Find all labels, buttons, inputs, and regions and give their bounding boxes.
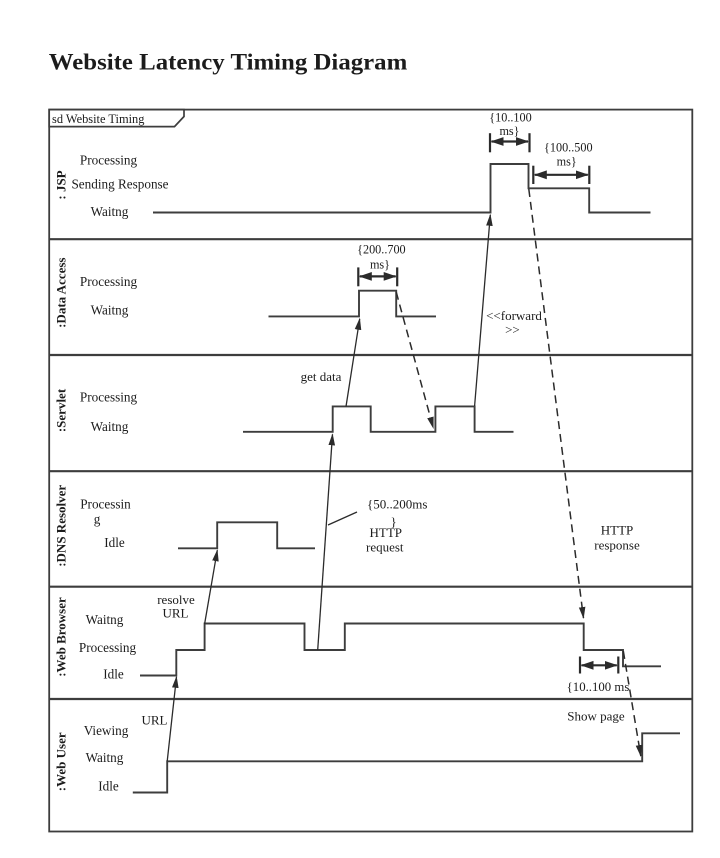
svg-text:Show page: Show page <box>567 708 625 723</box>
svg-text:ms}: ms} <box>499 124 519 138</box>
svg-text:request: request <box>366 540 404 555</box>
svg-text:Waitng: Waitng <box>91 419 129 434</box>
svg-text:Waitng: Waitng <box>91 204 129 219</box>
svg-text:Viewing: Viewing <box>84 723 129 738</box>
svg-text:Idle: Idle <box>98 778 119 793</box>
svg-text:ms}: ms} <box>370 257 390 271</box>
svg-text:: JSP: : JSP <box>54 170 69 199</box>
svg-text:Waitng: Waitng <box>86 750 124 765</box>
svg-text:{10..100: {10..100 <box>489 110 531 124</box>
svg-text::Web User: :Web User <box>54 732 69 791</box>
svg-text:{50..200ms: {50..200ms <box>367 497 427 512</box>
svg-text:Waitng: Waitng <box>91 303 129 318</box>
svg-text:Waitng: Waitng <box>86 612 124 627</box>
svg-text::Web Browser: :Web Browser <box>54 597 69 677</box>
svg-text:ms}: ms} <box>557 155 577 169</box>
svg-text:Processing: Processing <box>80 153 138 168</box>
svg-text:response: response <box>594 537 640 552</box>
svg-text:Processing: Processing <box>80 390 138 405</box>
svg-text:Sending Response: Sending Response <box>71 177 168 192</box>
svg-text:sd Website Timing: sd Website Timing <box>52 112 144 126</box>
svg-text:URL: URL <box>163 606 189 621</box>
svg-text:{100..500: {100..500 <box>544 141 593 155</box>
svg-text:g: g <box>94 512 101 527</box>
svg-text:{200..700: {200..700 <box>357 243 406 257</box>
svg-text:Idle: Idle <box>103 666 124 681</box>
svg-text:Website Latency Timing Diagram: Website Latency Timing Diagram <box>49 49 408 74</box>
svg-text:<<forward: <<forward <box>486 308 542 323</box>
svg-text:Processin: Processin <box>80 497 131 512</box>
svg-text::DNS Resolver: :DNS Resolver <box>54 485 69 567</box>
svg-text:URL: URL <box>142 713 168 728</box>
svg-text:Processing: Processing <box>80 274 138 289</box>
svg-text:Idle: Idle <box>104 535 125 550</box>
svg-text::Data Access: :Data Access <box>54 257 69 327</box>
svg-text:HTTP: HTTP <box>370 525 403 540</box>
svg-text::Servlet: :Servlet <box>54 388 69 432</box>
svg-text:{10..100 ms: {10..100 ms <box>567 680 630 694</box>
svg-text:Processing: Processing <box>79 640 137 655</box>
svg-text:>>: >> <box>505 322 520 337</box>
svg-text:HTTP: HTTP <box>601 523 634 538</box>
svg-text:get data: get data <box>301 369 342 384</box>
